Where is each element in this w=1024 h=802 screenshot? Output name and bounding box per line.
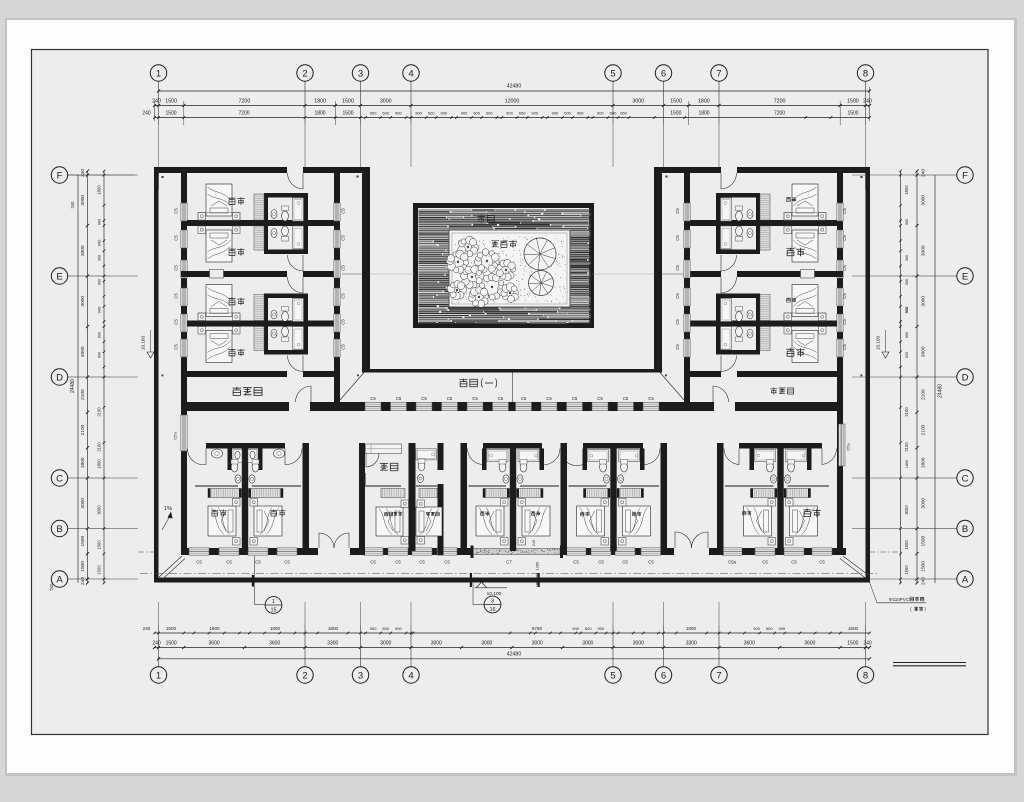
svg-text:1%: 1% bbox=[164, 506, 172, 512]
svg-text:1800: 1800 bbox=[270, 626, 281, 631]
svg-text:240: 240 bbox=[921, 169, 927, 177]
svg-text:3000: 3000 bbox=[904, 505, 909, 515]
svg-text:600: 600 bbox=[98, 332, 102, 338]
svg-text:2100: 2100 bbox=[904, 442, 909, 452]
svg-text:1500: 1500 bbox=[904, 565, 909, 575]
svg-text:42480: 42480 bbox=[507, 652, 522, 658]
svg-text:900: 900 bbox=[440, 110, 447, 115]
svg-text:900: 900 bbox=[395, 626, 402, 631]
svg-text:C5: C5 bbox=[472, 396, 478, 401]
svg-text:600: 600 bbox=[428, 110, 435, 115]
svg-text:600: 600 bbox=[519, 110, 526, 115]
svg-text:F: F bbox=[962, 170, 968, 181]
svg-text:C: C bbox=[962, 473, 969, 484]
svg-text:C5: C5 bbox=[370, 396, 376, 401]
svg-text:3000: 3000 bbox=[921, 296, 927, 307]
svg-text:1500: 1500 bbox=[166, 640, 177, 646]
svg-text:7200: 7200 bbox=[239, 98, 251, 104]
svg-text:240: 240 bbox=[49, 583, 54, 591]
svg-text:900: 900 bbox=[98, 279, 102, 285]
svg-text:C5: C5 bbox=[572, 396, 578, 401]
svg-text:F: F bbox=[57, 170, 63, 181]
svg-text:240: 240 bbox=[921, 577, 927, 585]
svg-text:C5: C5 bbox=[341, 293, 346, 299]
svg-text:C5: C5 bbox=[842, 235, 847, 241]
svg-text:4: 4 bbox=[408, 68, 413, 79]
svg-text:7200: 7200 bbox=[774, 110, 785, 116]
svg-text:7: 7 bbox=[716, 670, 721, 681]
svg-text:3000: 3000 bbox=[431, 640, 442, 646]
svg-text:2100: 2100 bbox=[97, 442, 102, 452]
svg-text:900: 900 bbox=[370, 626, 377, 631]
svg-text:240: 240 bbox=[80, 577, 86, 585]
svg-text:900: 900 bbox=[753, 626, 760, 631]
svg-text:180: 180 bbox=[536, 581, 540, 587]
svg-text:2: 2 bbox=[302, 68, 307, 79]
svg-text:C5: C5 bbox=[196, 560, 202, 565]
svg-text:C5: C5 bbox=[675, 319, 680, 325]
svg-text:B: B bbox=[56, 524, 62, 535]
svg-text:1800: 1800 bbox=[328, 626, 339, 631]
svg-text:1800: 1800 bbox=[904, 185, 909, 195]
svg-text:900: 900 bbox=[597, 110, 604, 115]
svg-text:C5a: C5a bbox=[173, 432, 178, 440]
svg-text:C5: C5 bbox=[648, 396, 654, 401]
svg-text:C5: C5 bbox=[791, 560, 797, 565]
svg-text:1500: 1500 bbox=[80, 535, 86, 546]
svg-text:C5: C5 bbox=[396, 396, 402, 401]
svg-text:C5: C5 bbox=[597, 396, 603, 401]
svg-text:600: 600 bbox=[564, 110, 571, 115]
svg-text:900: 900 bbox=[577, 110, 584, 115]
svg-text:3000: 3000 bbox=[80, 245, 86, 256]
svg-text:1500: 1500 bbox=[670, 98, 682, 104]
svg-text:600: 600 bbox=[905, 332, 909, 338]
svg-text:7200: 7200 bbox=[774, 98, 786, 104]
svg-text:3000: 3000 bbox=[532, 640, 543, 646]
svg-text:6: 6 bbox=[661, 68, 666, 79]
svg-text:8: 8 bbox=[863, 670, 868, 681]
svg-text:3000: 3000 bbox=[80, 498, 86, 509]
svg-text:1800: 1800 bbox=[80, 457, 86, 468]
svg-text:3000: 3000 bbox=[632, 98, 644, 104]
svg-text:5: 5 bbox=[610, 670, 615, 681]
svg-text:1800: 1800 bbox=[314, 110, 325, 116]
svg-text:3000: 3000 bbox=[582, 640, 593, 646]
svg-text:C5: C5 bbox=[341, 208, 346, 214]
svg-text:C5: C5 bbox=[284, 560, 290, 565]
svg-text:1500: 1500 bbox=[97, 565, 102, 575]
svg-text:5760: 5760 bbox=[532, 626, 543, 631]
svg-text:C5: C5 bbox=[842, 265, 847, 271]
svg-text:8: 8 bbox=[863, 68, 868, 79]
svg-text:240: 240 bbox=[152, 98, 161, 104]
svg-text:600: 600 bbox=[382, 110, 389, 115]
svg-text:3000: 3000 bbox=[380, 98, 392, 104]
svg-text:900: 900 bbox=[370, 110, 377, 115]
svg-text:12000: 12000 bbox=[505, 98, 520, 104]
svg-text:C5: C5 bbox=[842, 344, 847, 350]
svg-text:C5: C5 bbox=[174, 208, 179, 214]
svg-text:900: 900 bbox=[779, 626, 786, 631]
svg-text:1500: 1500 bbox=[166, 626, 177, 631]
svg-text:C5: C5 bbox=[174, 235, 179, 241]
svg-text:4: 4 bbox=[408, 670, 413, 681]
svg-text:2100: 2100 bbox=[904, 407, 909, 417]
svg-text:3000: 3000 bbox=[80, 296, 86, 307]
svg-text:900: 900 bbox=[905, 219, 909, 225]
svg-text:1800: 1800 bbox=[921, 457, 927, 468]
svg-text:240: 240 bbox=[863, 98, 872, 104]
svg-text:7: 7 bbox=[716, 68, 721, 79]
svg-text:900: 900 bbox=[98, 219, 102, 225]
svg-text:3000: 3000 bbox=[921, 195, 927, 206]
svg-text:2100: 2100 bbox=[921, 424, 927, 435]
svg-text:24480: 24480 bbox=[70, 379, 76, 393]
svg-text:900: 900 bbox=[905, 279, 909, 285]
svg-text:1800: 1800 bbox=[698, 98, 710, 104]
svg-text:C5: C5 bbox=[675, 208, 680, 214]
svg-text:3000: 3000 bbox=[380, 640, 391, 646]
svg-text:15: 15 bbox=[270, 608, 276, 614]
svg-text:1500: 1500 bbox=[97, 540, 102, 550]
svg-text:16: 16 bbox=[489, 607, 495, 613]
svg-text:10.100: 10.100 bbox=[876, 336, 881, 350]
svg-text:B: B bbox=[962, 524, 968, 535]
svg-text:1500: 1500 bbox=[80, 561, 86, 572]
svg-text:3600: 3600 bbox=[744, 640, 755, 646]
svg-text:1500: 1500 bbox=[165, 98, 177, 104]
svg-text:1260: 1260 bbox=[536, 562, 540, 570]
svg-text:7200: 7200 bbox=[238, 110, 249, 116]
svg-text:C5: C5 bbox=[174, 293, 179, 299]
svg-text:900: 900 bbox=[572, 626, 579, 631]
svg-text:1: 1 bbox=[156, 68, 161, 79]
svg-text:600: 600 bbox=[610, 110, 617, 115]
svg-text:1500: 1500 bbox=[848, 626, 859, 631]
svg-text:900: 900 bbox=[506, 110, 513, 115]
svg-text:900: 900 bbox=[905, 352, 909, 358]
svg-text:1800: 1800 bbox=[209, 626, 220, 631]
svg-text:C5: C5 bbox=[573, 560, 579, 565]
svg-text:2: 2 bbox=[302, 670, 307, 681]
svg-text:650: 650 bbox=[620, 110, 627, 115]
svg-text:A: A bbox=[962, 574, 969, 585]
svg-text:240: 240 bbox=[531, 539, 536, 546]
svg-text:900: 900 bbox=[97, 306, 102, 313]
svg-text:C5: C5 bbox=[842, 319, 847, 325]
svg-text:C5: C5 bbox=[546, 396, 552, 401]
svg-text:C5: C5 bbox=[498, 396, 504, 401]
svg-text:3300: 3300 bbox=[327, 640, 338, 646]
svg-text:900: 900 bbox=[531, 110, 538, 115]
svg-text:3000: 3000 bbox=[921, 498, 927, 509]
svg-text:1500: 1500 bbox=[904, 540, 909, 550]
svg-text:24480: 24480 bbox=[938, 384, 944, 398]
svg-text:240: 240 bbox=[80, 169, 86, 177]
svg-text:3600: 3600 bbox=[209, 640, 220, 646]
svg-text:240: 240 bbox=[143, 626, 151, 631]
svg-text:1800: 1800 bbox=[97, 459, 102, 469]
svg-text:240: 240 bbox=[142, 110, 151, 116]
svg-text:3000: 3000 bbox=[921, 346, 927, 357]
svg-text:C5: C5 bbox=[648, 560, 654, 565]
svg-text:C5: C5 bbox=[419, 560, 425, 565]
svg-text:300: 300 bbox=[536, 573, 540, 579]
svg-text:C5: C5 bbox=[762, 560, 768, 565]
svg-text:C5: C5 bbox=[675, 344, 680, 350]
svg-text:900: 900 bbox=[98, 352, 102, 358]
svg-text:300: 300 bbox=[98, 255, 102, 261]
svg-text:1500: 1500 bbox=[847, 640, 858, 646]
svg-text:C5: C5 bbox=[174, 319, 179, 325]
svg-text:1500: 1500 bbox=[921, 561, 927, 572]
svg-text:3000: 3000 bbox=[80, 195, 86, 206]
svg-text:2100: 2100 bbox=[80, 424, 86, 435]
svg-text:1500: 1500 bbox=[342, 98, 354, 104]
svg-text:600: 600 bbox=[766, 626, 773, 631]
svg-text:2100: 2100 bbox=[80, 389, 86, 400]
svg-text:C5: C5 bbox=[842, 208, 847, 214]
svg-text:C5a: C5a bbox=[728, 560, 736, 565]
svg-text:900: 900 bbox=[552, 110, 559, 115]
svg-text:D: D bbox=[962, 372, 969, 383]
svg-text:1500: 1500 bbox=[165, 110, 176, 116]
svg-text:C5: C5 bbox=[675, 235, 680, 241]
svg-text:900: 900 bbox=[598, 626, 605, 631]
svg-text:1: 1 bbox=[156, 670, 161, 681]
svg-text:900: 900 bbox=[486, 110, 493, 115]
svg-text:A: A bbox=[56, 574, 63, 585]
svg-text:C5: C5 bbox=[444, 560, 450, 565]
svg-text:600: 600 bbox=[473, 110, 480, 115]
svg-text:D: D bbox=[56, 372, 63, 383]
svg-text:C5: C5 bbox=[842, 293, 847, 299]
svg-text:C5: C5 bbox=[675, 265, 680, 271]
svg-text:C5: C5 bbox=[623, 396, 629, 401]
svg-text:900: 900 bbox=[461, 110, 468, 115]
svg-text:C5: C5 bbox=[675, 293, 680, 299]
svg-text:3000: 3000 bbox=[481, 640, 492, 646]
svg-text:C5: C5 bbox=[341, 344, 346, 350]
svg-text:3: 3 bbox=[491, 599, 494, 605]
svg-text:1500: 1500 bbox=[921, 535, 927, 546]
svg-text:C5: C5 bbox=[174, 344, 179, 350]
svg-text:E: E bbox=[56, 271, 62, 282]
svg-text:C5: C5 bbox=[622, 560, 628, 565]
svg-text:600: 600 bbox=[585, 626, 592, 631]
svg-text:1800: 1800 bbox=[686, 626, 697, 631]
svg-text:3000: 3000 bbox=[633, 640, 644, 646]
svg-text:5: 5 bbox=[610, 68, 615, 79]
svg-text:1500: 1500 bbox=[342, 110, 353, 116]
svg-text:C5: C5 bbox=[174, 265, 179, 271]
svg-text:C5: C5 bbox=[255, 560, 261, 565]
svg-text:C5: C5 bbox=[370, 560, 376, 565]
svg-text:Φ110PVC: Φ110PVC bbox=[889, 597, 910, 602]
svg-text:240: 240 bbox=[863, 640, 872, 646]
svg-text:900: 900 bbox=[97, 239, 102, 246]
svg-text:1800: 1800 bbox=[698, 110, 709, 116]
svg-text:C5: C5 bbox=[819, 560, 825, 565]
svg-text:900: 900 bbox=[395, 110, 402, 115]
svg-text:E: E bbox=[962, 271, 968, 282]
svg-text:C7: C7 bbox=[506, 560, 512, 565]
svg-text:3000: 3000 bbox=[80, 346, 86, 357]
svg-text:C5: C5 bbox=[341, 235, 346, 241]
svg-text:2100: 2100 bbox=[921, 389, 927, 400]
svg-text:42480: 42480 bbox=[507, 84, 522, 90]
svg-text:1800: 1800 bbox=[314, 98, 326, 104]
svg-text:C5: C5 bbox=[341, 319, 346, 325]
svg-text:3: 3 bbox=[358, 670, 363, 681]
svg-text:C5: C5 bbox=[341, 265, 346, 271]
svg-text:1500: 1500 bbox=[847, 98, 859, 104]
svg-text:6: 6 bbox=[661, 670, 666, 681]
svg-text:3600: 3600 bbox=[804, 640, 815, 646]
svg-text:1500: 1500 bbox=[670, 110, 681, 116]
svg-text:900: 900 bbox=[905, 307, 909, 313]
svg-text:1: 1 bbox=[272, 599, 275, 605]
svg-text:2100: 2100 bbox=[97, 407, 102, 417]
svg-text:3000: 3000 bbox=[921, 245, 927, 256]
svg-text:C5: C5 bbox=[521, 396, 527, 401]
svg-text:3: 3 bbox=[358, 68, 363, 79]
svg-text:600: 600 bbox=[382, 626, 389, 631]
svg-text:240: 240 bbox=[152, 640, 161, 646]
svg-text:3000: 3000 bbox=[97, 505, 102, 515]
svg-text:1500: 1500 bbox=[847, 110, 858, 116]
svg-text:C: C bbox=[56, 473, 63, 484]
svg-text:C5: C5 bbox=[447, 396, 453, 401]
svg-text:240: 240 bbox=[70, 201, 75, 209]
svg-text:C5: C5 bbox=[226, 560, 232, 565]
svg-text:1800: 1800 bbox=[97, 185, 102, 195]
svg-text:300: 300 bbox=[905, 255, 909, 261]
svg-text:C5a: C5a bbox=[846, 443, 851, 451]
svg-text:C5: C5 bbox=[598, 560, 604, 565]
svg-text:C5: C5 bbox=[395, 560, 401, 565]
svg-text:3300: 3300 bbox=[686, 640, 697, 646]
svg-text:C5: C5 bbox=[421, 396, 427, 401]
svg-text:900: 900 bbox=[415, 110, 422, 115]
svg-text:10.100: 10.100 bbox=[141, 336, 146, 350]
svg-text:3600: 3600 bbox=[269, 640, 280, 646]
svg-text:1800: 1800 bbox=[905, 460, 909, 468]
